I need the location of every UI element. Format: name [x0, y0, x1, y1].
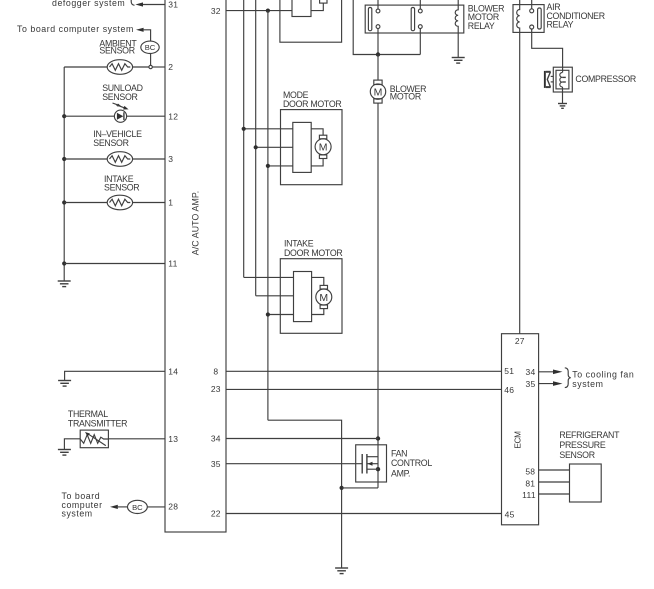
svg-text:To cooling fan: To cooling fan: [572, 369, 634, 379]
svg-text:11: 11: [168, 259, 177, 269]
svg-text:35: 35: [526, 379, 536, 389]
svg-text:58: 58: [525, 466, 535, 476]
svg-text:SENSOR: SENSOR: [559, 450, 594, 460]
svg-text:SENSOR: SENSOR: [93, 138, 128, 148]
svg-text:28: 28: [168, 502, 178, 512]
svg-text:TRANSMITTER: TRANSMITTER: [68, 418, 127, 428]
svg-text:27: 27: [515, 336, 525, 346]
svg-text:14: 14: [168, 367, 178, 377]
svg-text:REFRIGERANT: REFRIGERANT: [559, 430, 620, 440]
svg-text:32: 32: [211, 6, 221, 16]
svg-text:system: system: [572, 379, 603, 389]
svg-text:BC: BC: [145, 43, 156, 52]
svg-text:13: 13: [168, 434, 178, 444]
svg-text:RELAY: RELAY: [468, 21, 495, 31]
svg-text:AMP.: AMP.: [391, 469, 410, 479]
svg-text:BC: BC: [132, 503, 143, 512]
svg-text:RELAY: RELAY: [547, 19, 574, 29]
svg-text:M: M: [319, 142, 328, 154]
svg-text:CONTROL: CONTROL: [391, 458, 432, 468]
svg-text:51: 51: [504, 366, 514, 376]
svg-text:45: 45: [505, 509, 515, 519]
svg-text:MOTOR: MOTOR: [390, 92, 421, 102]
svg-text:81: 81: [525, 479, 535, 489]
svg-text:34: 34: [211, 434, 221, 444]
svg-text:12: 12: [168, 111, 178, 121]
svg-text:8: 8: [213, 367, 218, 377]
svg-text:DOOR MOTOR: DOOR MOTOR: [283, 99, 341, 109]
svg-text:DOOR MOTOR: DOOR MOTOR: [284, 248, 342, 258]
svg-text:22: 22: [211, 509, 221, 519]
svg-text:34: 34: [526, 367, 536, 377]
svg-text:PRESSURE: PRESSURE: [559, 440, 605, 450]
svg-text:SENSOR: SENSOR: [99, 45, 134, 55]
svg-text:1: 1: [168, 198, 173, 208]
svg-text:46: 46: [504, 385, 514, 395]
svg-text:111: 111: [522, 490, 536, 500]
svg-text:SENSOR: SENSOR: [102, 92, 137, 102]
svg-text:ECM: ECM: [514, 431, 523, 449]
svg-text:FAN: FAN: [391, 449, 407, 459]
svg-text:SENSOR: SENSOR: [104, 183, 139, 193]
svg-text:defogger system: defogger system: [52, 0, 125, 8]
svg-text:A/C AUTO AMP.: A/C AUTO AMP.: [191, 191, 201, 256]
svg-text:31: 31: [168, 0, 178, 9]
svg-text:M: M: [319, 292, 328, 304]
svg-text:23: 23: [211, 384, 221, 394]
svg-text:COMPRESSOR: COMPRESSOR: [575, 74, 636, 84]
svg-text:3: 3: [168, 154, 173, 164]
svg-text:To board computer system: To board computer system: [17, 24, 134, 34]
svg-text:system: system: [62, 508, 93, 518]
svg-text:35: 35: [211, 459, 221, 469]
svg-text:2: 2: [168, 62, 173, 72]
svg-text:M: M: [374, 86, 383, 98]
